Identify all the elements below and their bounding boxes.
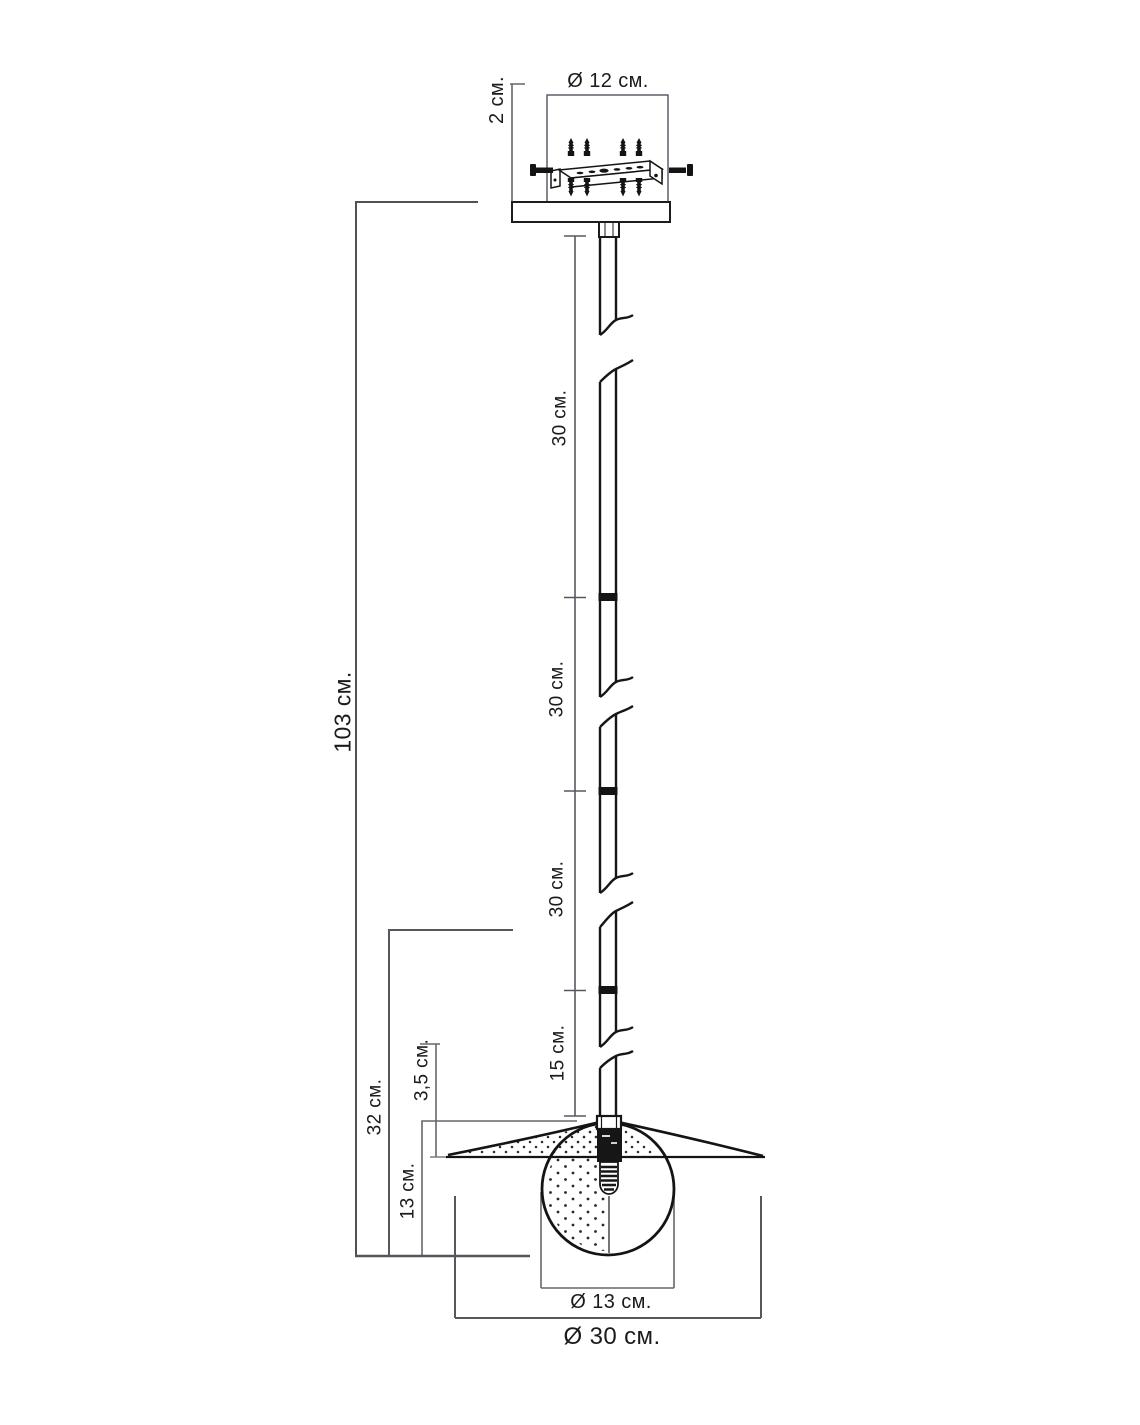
dim-label-total-height: 103 см. (332, 671, 355, 752)
canopy-plate (512, 202, 670, 222)
dim-label-canopy-diameter: Ø 12 см. (567, 71, 648, 91)
bulb-thread-base (600, 1162, 618, 1194)
rod-collar (597, 1116, 621, 1129)
dim-label-bulb-section: 13 см. (399, 1163, 418, 1220)
dim-label-rod-segment-4: 15 см. (549, 1025, 568, 1082)
lamp-technical-drawing: Ø 12 см. 2 см. 30 см. 30 см. 30 см. 15 с… (0, 0, 1140, 1425)
dim-label-rod-segment-1: 30 см. (551, 390, 570, 447)
dim-label-rod-segment-2: 30 см. (548, 661, 567, 718)
drawing-linework (0, 0, 1140, 1425)
lamp-head (446, 1116, 765, 1255)
lamp-socket (597, 1129, 622, 1162)
canopy-outline-box (547, 95, 668, 202)
dim-label-canopy-thickness: 2 см. (487, 76, 507, 124)
canopy-nipple (599, 222, 619, 237)
screws-top (568, 138, 642, 156)
mounting-bracket (551, 161, 662, 188)
dim-label-bottom-section: 32 см. (366, 1079, 385, 1136)
ceiling-mount-canopy (512, 95, 693, 237)
dim-label-shade-diameter: Ø 30 см. (563, 1325, 660, 1349)
dim-label-rod-segment-3: 30 см. (548, 861, 567, 918)
bulb-stipple (546, 1157, 608, 1251)
dim-label-shade-height: 3,5 см. (413, 1039, 432, 1101)
suspension-rod (599, 238, 634, 1116)
dim-label-bulb-diameter: Ø 13 см. (570, 1292, 651, 1312)
